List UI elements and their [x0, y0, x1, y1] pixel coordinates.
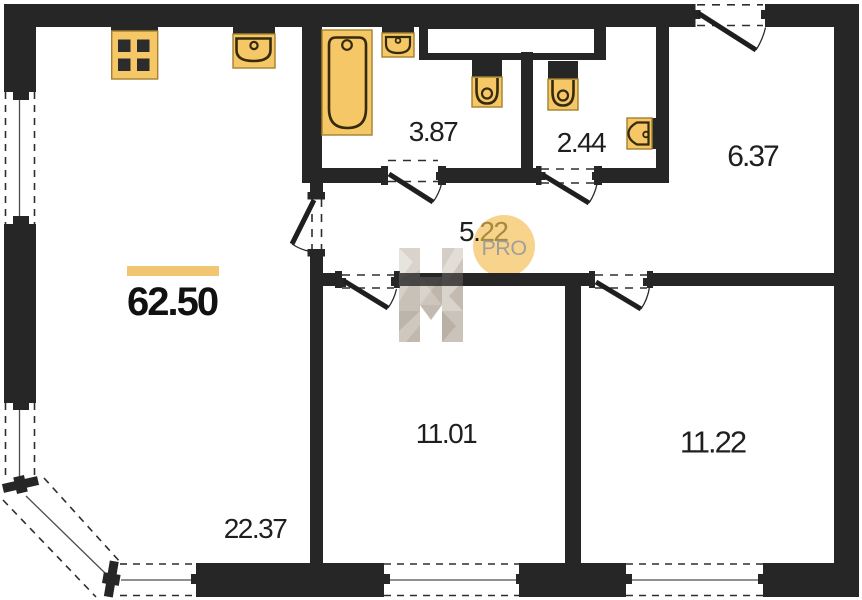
svg-text:6.37: 6.37 [727, 140, 779, 173]
svg-text:22.37: 22.37 [224, 513, 287, 544]
svg-text:3.87: 3.87 [409, 116, 458, 147]
svg-text:2.44: 2.44 [557, 127, 606, 158]
svg-text:62.50: 62.50 [127, 280, 218, 324]
svg-text:PRO: PRO [481, 236, 526, 260]
svg-text:11.22: 11.22 [680, 425, 746, 460]
svg-text:11.01: 11.01 [416, 418, 477, 449]
